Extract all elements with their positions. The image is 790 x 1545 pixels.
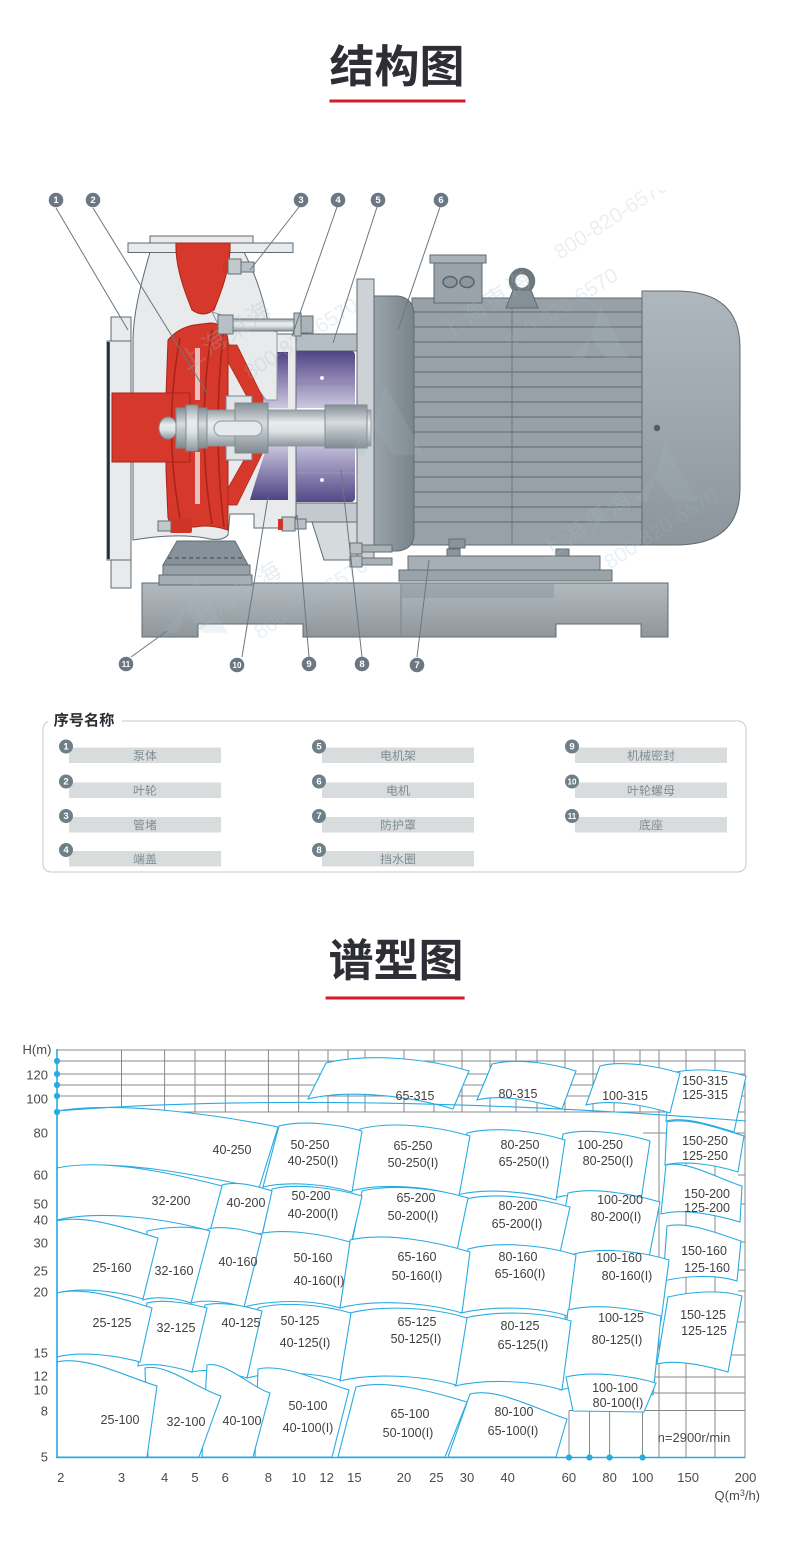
svg-text:65-125(I): 65-125(I) [498,1338,549,1352]
svg-text:20: 20 [34,1285,48,1300]
svg-text:6: 6 [222,1470,229,1485]
svg-text:100-160: 100-160 [596,1251,642,1265]
svg-text:80-315: 80-315 [499,1087,538,1101]
svg-text:10: 10 [291,1470,305,1485]
svg-text:50-160(I): 50-160(I) [392,1269,443,1283]
svg-text:12: 12 [34,1369,48,1384]
svg-text:150-315: 150-315 [682,1074,728,1088]
svg-text:80-250: 80-250 [501,1138,540,1152]
svg-text:50-200(I): 50-200(I) [388,1209,439,1223]
svg-text:30: 30 [34,1236,48,1251]
svg-text:50-125: 50-125 [281,1314,320,1328]
svg-text:80-100(I): 80-100(I) [593,1396,644,1410]
svg-text:40: 40 [500,1470,514,1485]
svg-text:32-160: 32-160 [155,1264,194,1278]
svg-text:80-100: 80-100 [495,1405,534,1419]
svg-text:2: 2 [90,195,95,206]
svg-text:60: 60 [562,1470,576,1485]
svg-text:8: 8 [316,845,321,856]
svg-text:65-100: 65-100 [391,1407,430,1421]
svg-text:4: 4 [63,845,69,856]
svg-text:65-250: 65-250 [394,1139,433,1153]
svg-text:8: 8 [359,659,364,670]
svg-text:40-160(I): 40-160(I) [294,1274,345,1288]
svg-text:5: 5 [41,1450,48,1465]
svg-text:60: 60 [34,1168,48,1183]
svg-text:100-200: 100-200 [597,1193,643,1207]
svg-text:65-125: 65-125 [398,1315,437,1329]
svg-text:15: 15 [34,1346,48,1361]
svg-text:50-125(I): 50-125(I) [391,1332,442,1346]
svg-text:80-250(I): 80-250(I) [583,1154,634,1168]
svg-text:40-250: 40-250 [213,1143,252,1157]
svg-text:2: 2 [57,1470,64,1485]
svg-text:32-100: 32-100 [167,1415,206,1429]
svg-text:65-315: 65-315 [396,1089,435,1103]
svg-text:65-200: 65-200 [397,1191,436,1205]
svg-text:150-200: 150-200 [684,1187,730,1201]
svg-text:25: 25 [429,1470,443,1485]
svg-text:32-200: 32-200 [152,1194,191,1208]
svg-text:150-160: 150-160 [681,1244,727,1258]
svg-text:80-125: 80-125 [501,1319,540,1333]
svg-text:8: 8 [41,1404,48,1419]
svg-text:65-200(I): 65-200(I) [492,1217,543,1231]
svg-text:H(m): H(m) [23,1042,52,1057]
svg-text:100-315: 100-315 [602,1089,648,1103]
svg-text:65-160(I): 65-160(I) [495,1267,546,1281]
svg-text:800-820-6570: 800-820-6570 [550,190,672,264]
svg-text:12: 12 [319,1470,333,1485]
svg-text:25-100: 25-100 [101,1413,140,1427]
svg-text:100: 100 [26,1092,48,1107]
svg-text:50: 50 [34,1197,48,1212]
svg-text:50-250(I): 50-250(I) [388,1156,439,1170]
svg-text:40-250(I): 40-250(I) [288,1154,339,1168]
svg-text:3: 3 [298,195,303,206]
svg-text:65-250(I): 65-250(I) [499,1155,550,1169]
svg-text:11: 11 [122,660,131,669]
svg-text:1: 1 [53,195,59,206]
svg-text:80-200: 80-200 [499,1199,538,1213]
svg-text:40-200: 40-200 [227,1196,266,1210]
svg-text:1: 1 [63,742,69,753]
svg-text:2: 2 [63,777,68,788]
svg-text:10: 10 [233,661,242,670]
svg-text:7: 7 [414,660,419,671]
svg-text:100-100: 100-100 [592,1381,638,1395]
svg-text:4: 4 [335,195,341,206]
svg-text:80: 80 [602,1470,616,1485]
svg-text:10: 10 [568,778,577,787]
svg-text:125-250: 125-250 [682,1149,728,1163]
svg-text:15: 15 [347,1470,361,1485]
svg-text:5: 5 [191,1470,198,1485]
svg-text:40-100(I): 40-100(I) [283,1421,334,1435]
svg-text:32-125: 32-125 [157,1321,196,1335]
svg-text:80-125(I): 80-125(I) [592,1333,643,1347]
svg-text:3: 3 [63,811,68,822]
svg-text:40-125(I): 40-125(I) [280,1336,331,1350]
svg-text:25-160: 25-160 [93,1261,132,1275]
svg-text:40: 40 [34,1213,48,1228]
svg-text:10: 10 [34,1383,48,1398]
svg-text:40-100: 40-100 [223,1414,262,1428]
svg-text:50-100(I): 50-100(I) [383,1426,434,1440]
svg-text:8: 8 [265,1470,272,1485]
svg-text:4: 4 [161,1470,168,1485]
svg-text:3: 3 [118,1470,125,1485]
svg-text:50-100: 50-100 [289,1399,328,1413]
svg-text:50-160: 50-160 [294,1251,333,1265]
svg-text:150: 150 [677,1470,699,1485]
svg-text:6: 6 [316,777,321,788]
svg-text:80-160: 80-160 [499,1250,538,1264]
svg-text:65-160: 65-160 [398,1250,437,1264]
svg-text:125-125: 125-125 [681,1324,727,1338]
svg-text:150-125: 150-125 [680,1308,726,1322]
svg-text:100-125: 100-125 [598,1311,644,1325]
svg-text:150-250: 150-250 [682,1134,728,1148]
svg-text:100: 100 [632,1470,654,1485]
svg-text:120: 120 [26,1068,48,1083]
svg-text:80-160(I): 80-160(I) [602,1269,653,1283]
svg-text:25: 25 [34,1264,48,1279]
svg-text:125-200: 125-200 [684,1201,730,1215]
svg-text:40-160: 40-160 [219,1255,258,1269]
svg-text:40-200(I): 40-200(I) [288,1207,339,1221]
svg-text:11: 11 [568,812,577,821]
svg-text:9: 9 [569,742,574,753]
svg-text:7: 7 [316,811,321,822]
svg-text:50-250: 50-250 [291,1138,330,1152]
svg-text:50-200: 50-200 [292,1189,331,1203]
svg-text:80-200(I): 80-200(I) [591,1210,642,1224]
svg-text:9: 9 [306,659,311,670]
svg-text:80: 80 [34,1126,48,1141]
svg-text:20: 20 [397,1470,411,1485]
svg-text:200: 200 [735,1470,757,1485]
svg-text:Q(m3/h): Q(m3/h) [715,1488,760,1503]
svg-text:125-160: 125-160 [684,1261,730,1275]
svg-text:65-100(I): 65-100(I) [488,1424,539,1438]
svg-text:30: 30 [460,1470,474,1485]
svg-text:25-125: 25-125 [93,1316,132,1330]
svg-text:6: 6 [438,195,443,206]
svg-text:n=2900r/min: n=2900r/min [658,1430,731,1445]
svg-text:100-250: 100-250 [577,1138,623,1152]
svg-text:5: 5 [375,195,381,206]
svg-text:125-315: 125-315 [682,1088,728,1102]
svg-text:5: 5 [316,742,322,753]
svg-text:40-125: 40-125 [222,1316,261,1330]
